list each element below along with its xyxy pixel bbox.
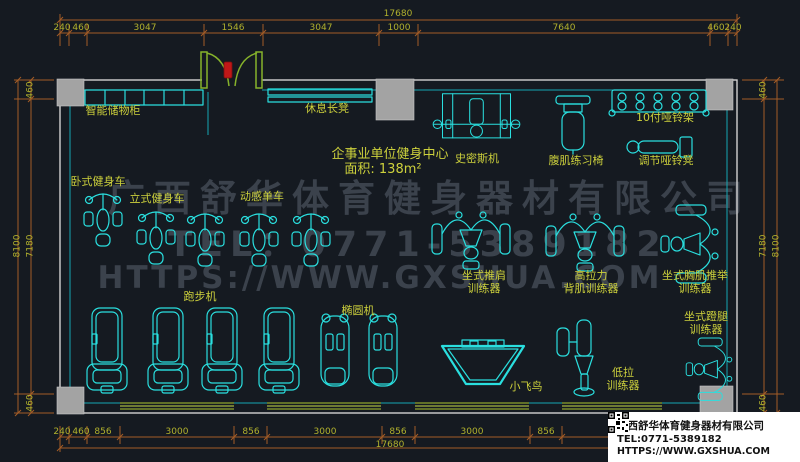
label-chest-press-2: 训练器 [679, 283, 712, 295]
equipment-smart-lockers [85, 90, 203, 105]
dim-right-1: 7180 [760, 235, 769, 258]
floorplan-drawing [0, 0, 800, 462]
walls [60, 80, 737, 413]
dim-top-0: 240 [53, 24, 70, 33]
dim-top-8: 240 [724, 24, 741, 33]
dim-top-4: 3047 [310, 24, 333, 33]
label-recumbent-bike: 卧式健身车 [71, 176, 126, 188]
dim-top-2: 3047 [134, 24, 157, 33]
equipment-upright-bike [137, 212, 175, 264]
equipment-shoulder-press [432, 212, 510, 269]
label-smart-locker: 智能储物柜 [86, 105, 141, 117]
label-room-title: 企事业单位健身中心 [331, 148, 448, 162]
label-cable-fly: 小飞鸟 [510, 381, 543, 393]
label-spin-bike: 动感单车 [240, 191, 284, 203]
label-dumbbell-bench: 调节哑铃凳 [639, 155, 694, 167]
dim-right-0: 460 [760, 81, 769, 98]
dim-bottom-0: 240 [53, 428, 70, 437]
dim-bottom-1: 460 [72, 428, 89, 437]
label-shoulder-press-1: 坐式推肩 [462, 270, 506, 282]
dim-bottom-5: 3000 [314, 428, 337, 437]
label-room-area: 面积: 138m² [344, 163, 421, 177]
dim-bottom-total: 17680 [376, 441, 405, 450]
dim-right-total: 8100 [773, 235, 782, 258]
dim-bottom-7: 3000 [461, 428, 484, 437]
door-handle [224, 62, 232, 78]
equipment-rest-bench [268, 89, 372, 102]
entrance-door [201, 52, 262, 92]
cad-floorplan-view: 广西舒华体育健身器材有限公司 TEL：0771-5389182 HTTPS://… [0, 0, 800, 462]
dim-bottom-3: 3000 [166, 428, 189, 437]
equipment-ellipticals [321, 314, 397, 386]
equipment-low-row [557, 320, 594, 396]
dim-top-1: 460 [72, 24, 89, 33]
label-leg-press-1: 坐式蹬腿 [684, 311, 728, 323]
info-company-name: 广西舒华体育健身器材有限公司 [617, 418, 770, 433]
label-lat-pull-2: 背肌训练器 [564, 283, 619, 295]
equipment-smith-machine [433, 94, 520, 138]
equipment-spin-bikes [186, 214, 330, 266]
label-shoulder-press-2: 训练器 [468, 283, 501, 295]
dim-top-5: 1000 [388, 24, 411, 33]
dim-bottom-6: 856 [389, 428, 406, 437]
equipment-treadmills [87, 308, 299, 393]
equipment-cable-fly [442, 340, 524, 384]
equipment-recumbent-bike [84, 194, 122, 246]
qr-code-icon [608, 412, 629, 433]
label-low-row-1: 低拉 [612, 367, 634, 379]
dim-left-0: 460 [27, 81, 36, 98]
equipment-ab-chair [556, 96, 590, 154]
dim-bottom-2: 856 [94, 428, 111, 437]
label-treadmill: 跑步机 [184, 291, 217, 303]
label-low-row-2: 训练器 [607, 380, 640, 392]
label-dumbbell-rack: 10付哑铃架 [636, 112, 694, 124]
dim-bottom-8: 856 [537, 428, 554, 437]
dim-top-total: 17680 [384, 10, 413, 19]
dim-right-2: 460 [760, 394, 769, 411]
dim-left-total: 8100 [14, 235, 23, 258]
dim-left-2: 460 [27, 394, 36, 411]
label-chest-press-1: 坐式胸肌推举 [662, 270, 728, 282]
label-upright-bike: 立式健身车 [130, 193, 185, 205]
dim-left-1: 7180 [27, 235, 36, 258]
window-strips [120, 403, 662, 409]
equipment-lat-pull [546, 214, 624, 271]
dim-bottom-4: 856 [242, 428, 259, 437]
company-info-box: 广西舒华体育健身器材有限公司 TEL:0771-5389182 HTTPS://… [608, 412, 800, 462]
label-elliptical: 椭圆机 [342, 305, 375, 317]
dim-top-3: 1546 [222, 24, 245, 33]
info-url: HTTPS://WWW.GXSHUA.COM [617, 446, 770, 457]
label-rest-bench: 休息长凳 [305, 103, 349, 115]
dim-top-6: 7640 [553, 24, 576, 33]
label-ab-chair: 腹肌练习椅 [549, 155, 604, 167]
label-lat-pull-1: 高拉力 [575, 270, 608, 282]
info-tel: TEL:0771-5389182 [617, 434, 770, 445]
dim-top-7: 460 [707, 24, 724, 33]
label-smith-machine: 史密斯机 [455, 153, 499, 165]
label-leg-press-2: 训练器 [690, 324, 723, 336]
